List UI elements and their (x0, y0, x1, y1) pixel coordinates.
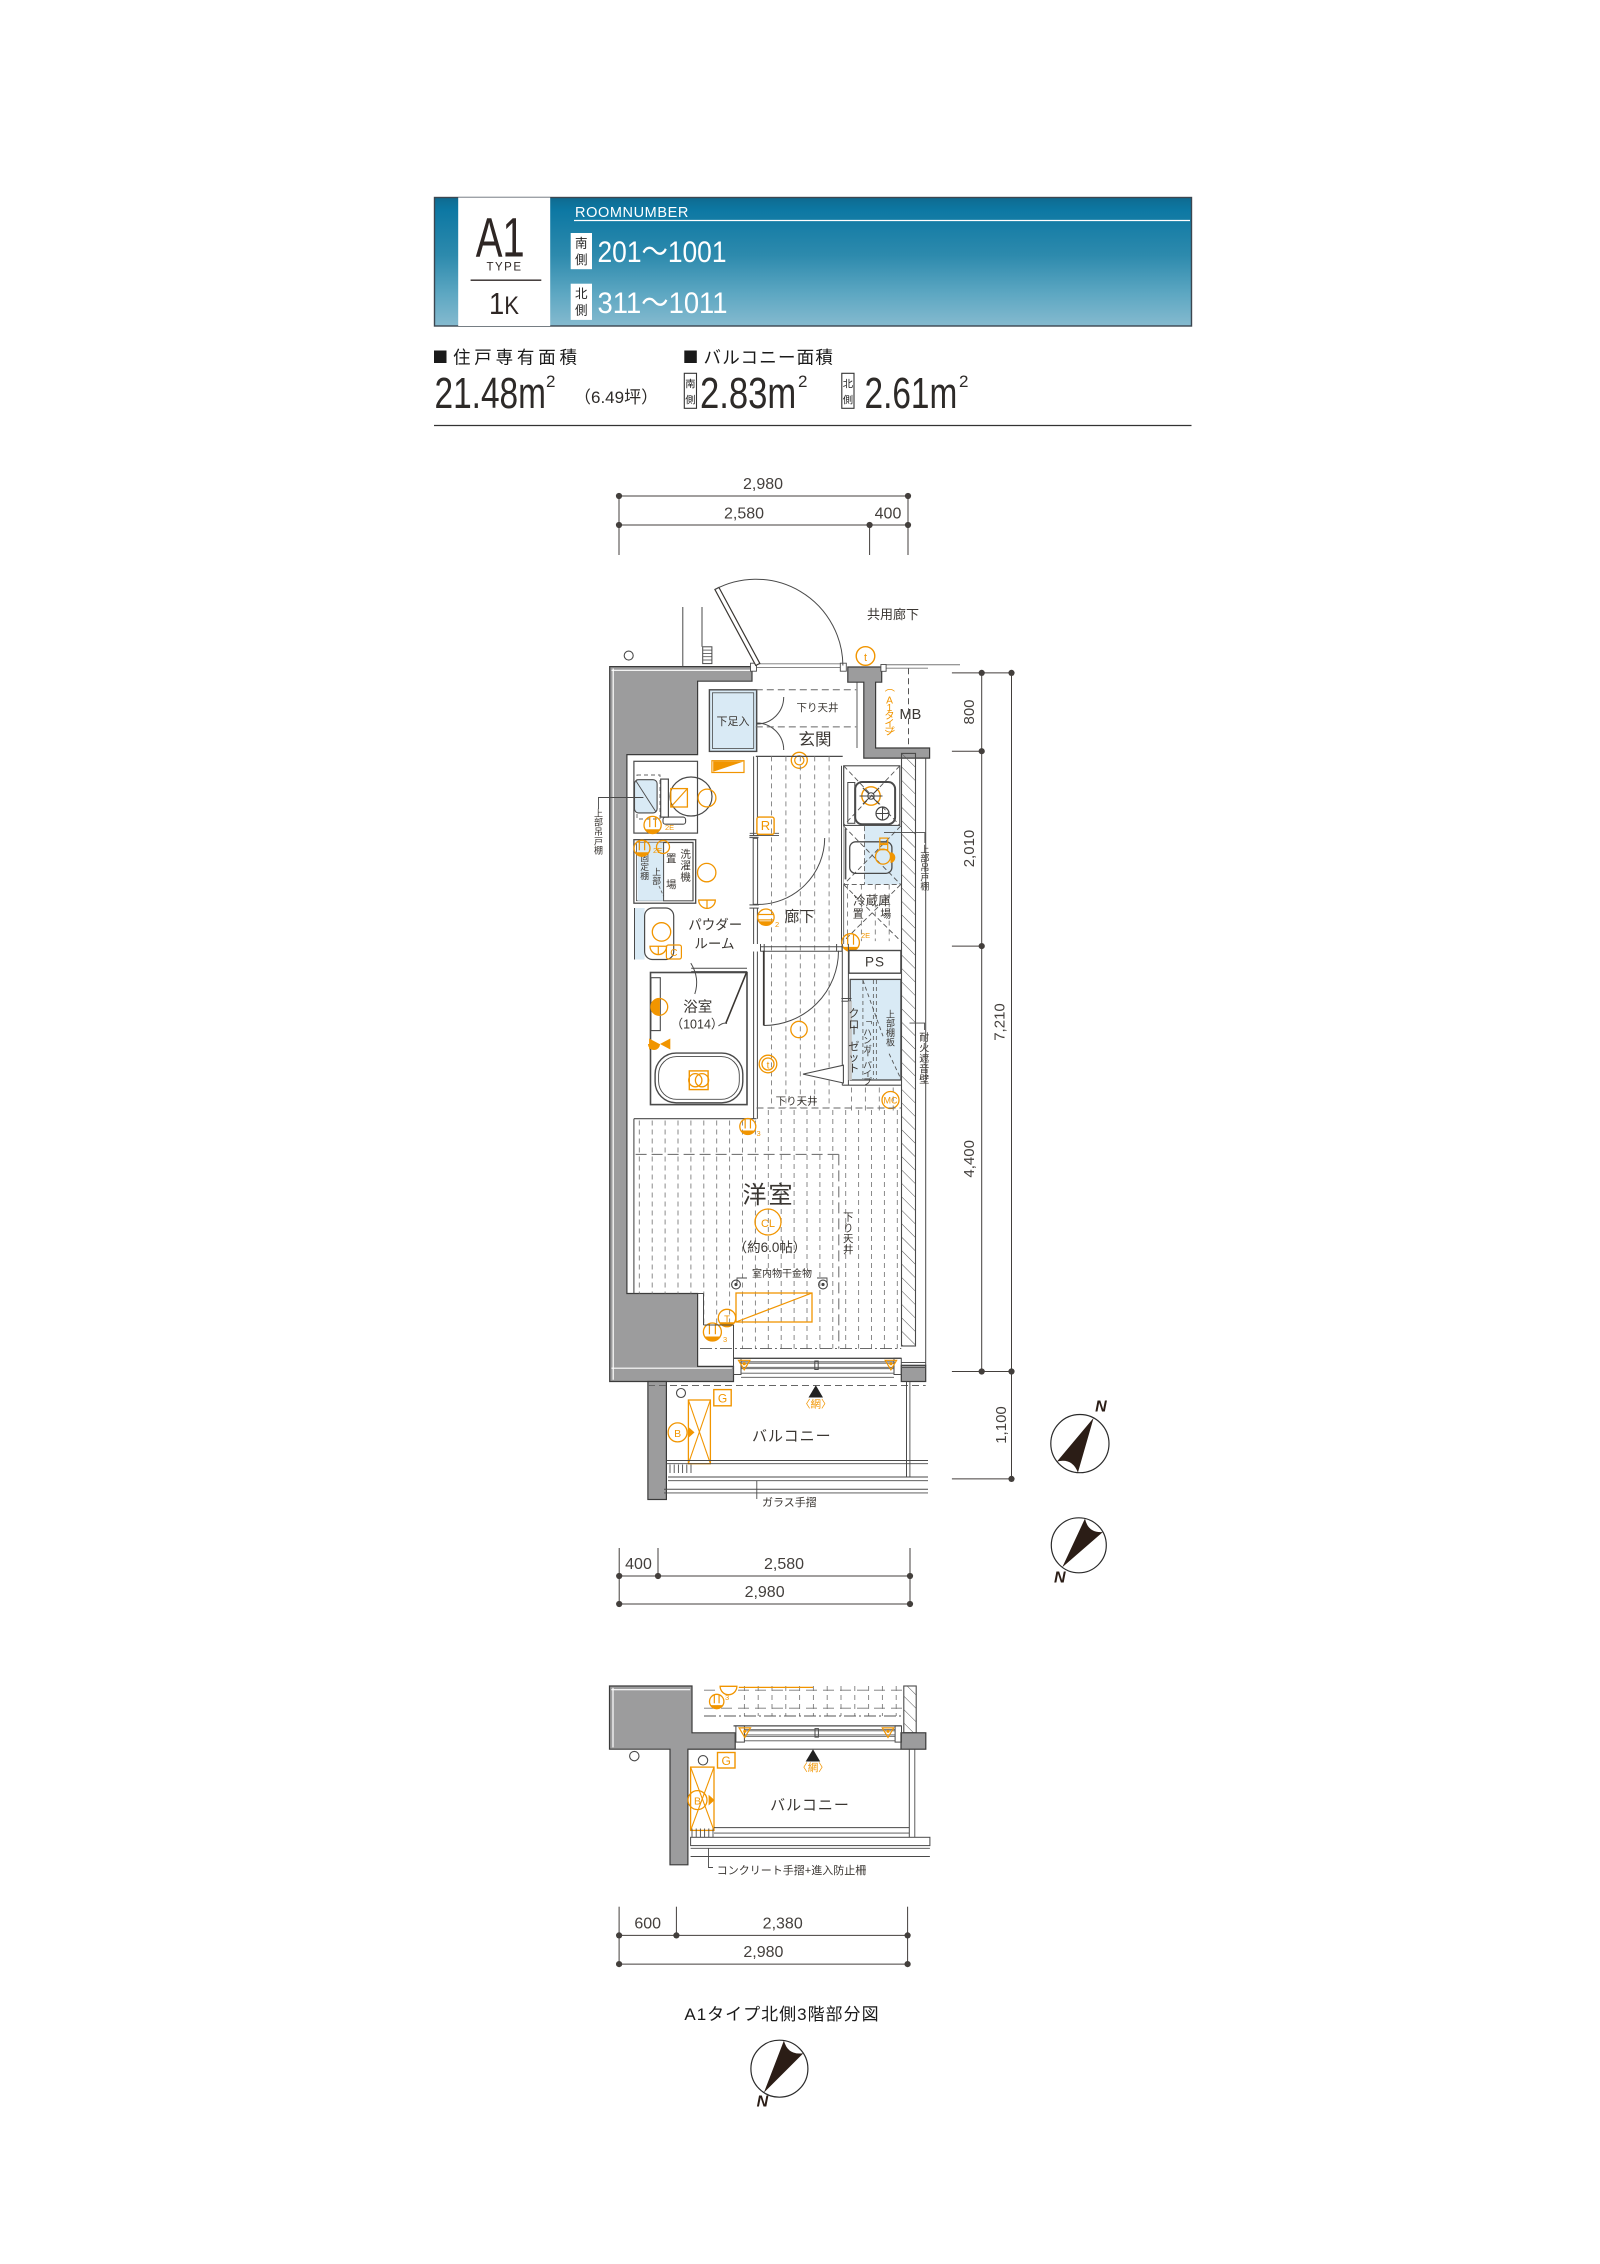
svg-text:下り天井: 下り天井 (797, 701, 839, 714)
svg-text:北: 北 (843, 379, 854, 391)
svg-text:共用廊下: 共用廊下 (867, 607, 919, 622)
svg-text:場: 場 (666, 878, 677, 891)
svg-text:ガラス手摺: ガラス手摺 (762, 1495, 817, 1509)
svg-text:G: G (718, 1392, 727, 1406)
svg-text:〈網〉: 〈網〉 (800, 1398, 832, 1411)
svg-text:（: （ (883, 682, 895, 692)
svg-text:600: 600 (634, 1915, 661, 1932)
svg-text:濯: 濯 (680, 860, 691, 872)
svg-text:2,980: 2,980 (743, 1944, 783, 1961)
svg-text:遮: 遮 (919, 1052, 929, 1065)
svg-text:）: ） (883, 729, 895, 739)
svg-text:t: t (767, 1060, 770, 1071)
svg-text:3: 3 (723, 1335, 727, 1344)
svg-text:洗: 洗 (680, 849, 691, 861)
svg-text:t: t (864, 652, 867, 664)
svg-text:311～1011: 311～1011 (598, 287, 728, 320)
svg-text:2: 2 (546, 372, 555, 391)
svg-text:パウダー: パウダー (688, 918, 742, 933)
svg-text:ルーム: ルーム (694, 937, 734, 952)
svg-text:玄関: 玄関 (799, 730, 832, 749)
svg-text:ト: ト (848, 1063, 859, 1075)
svg-text:下り天井: 下り天井 (776, 1095, 818, 1108)
svg-text:MB: MB (900, 707, 922, 723)
svg-text:1K: 1K (489, 286, 519, 321)
svg-text:ー: ー (847, 1025, 859, 1036)
svg-text:コンクリート手摺+進入防止柵: コンクリート手摺+進入防止柵 (717, 1863, 866, 1877)
svg-text:400: 400 (625, 1556, 652, 1573)
svg-text:2,980: 2,980 (745, 1584, 785, 1601)
svg-text:廊下: 廊下 (784, 909, 814, 926)
svg-text:南: 南 (575, 236, 588, 251)
svg-text:G: G (722, 1754, 731, 1768)
svg-text:室内物干金物: 室内物干金物 (752, 1267, 812, 1280)
svg-text:7,210: 7,210 (992, 1003, 1009, 1041)
svg-text:（6.49坪）: （6.49坪） (574, 388, 658, 407)
svg-text:TYPE: TYPE (486, 262, 522, 274)
svg-text:CL: CL (761, 1218, 775, 1230)
svg-text:2E: 2E (665, 823, 674, 832)
svg-text:MC: MC (884, 1096, 898, 1106)
svg-text:2,580: 2,580 (764, 1556, 804, 1573)
svg-text:2: 2 (775, 920, 779, 929)
svg-text:ROOMNUMBER: ROOMNUMBER (575, 205, 689, 221)
svg-text:機: 機 (680, 871, 691, 884)
svg-text:耐: 耐 (919, 1031, 929, 1044)
svg-text:2,980: 2,980 (743, 476, 783, 493)
svg-text:2: 2 (798, 372, 807, 391)
svg-text:「: 「 (862, 1016, 872, 1025)
svg-text:棚: 棚 (640, 870, 649, 881)
svg-text:N: N (1054, 1569, 1066, 1586)
svg-text:ー: ー (862, 1048, 872, 1057)
svg-text:2: 2 (959, 372, 968, 391)
svg-text:壁: 壁 (919, 1073, 929, 1086)
svg-text:棚: 棚 (920, 881, 929, 892)
svg-text:3: 3 (757, 1129, 761, 1138)
svg-text:800: 800 (961, 699, 978, 724)
svg-text:2,380: 2,380 (763, 1915, 803, 1932)
svg-text:N: N (1095, 1399, 1107, 1416)
svg-text:B: B (674, 1428, 681, 1440)
svg-text:北: 北 (575, 287, 588, 301)
svg-text:音: 音 (919, 1062, 929, 1075)
svg-text:バルコニー面積: バルコニー面積 (704, 347, 835, 367)
svg-text:2E: 2E (861, 931, 870, 940)
svg-text:N: N (757, 2094, 769, 2111)
svg-text:部: 部 (652, 875, 661, 886)
svg-text:住戸専有面積: 住戸専有面積 (453, 347, 581, 367)
svg-text:井: 井 (843, 1243, 854, 1256)
svg-text:（約6.0帖）: （約6.0帖） (734, 1240, 807, 1255)
svg-text:冷蔵庫: 冷蔵庫 (853, 894, 891, 908)
svg-text:側: 側 (575, 304, 588, 318)
svg-text:21.48m: 21.48m (435, 369, 547, 418)
svg-text:B: B (694, 1796, 701, 1808)
svg-text:浴室: 浴室 (683, 999, 712, 1016)
svg-text:置: 置 (666, 853, 677, 865)
svg-text:2.83m: 2.83m (700, 369, 796, 418)
svg-text:A1: A1 (476, 206, 525, 269)
svg-text:〈網〉: 〈網〉 (797, 1761, 829, 1774)
svg-text:2,580: 2,580 (724, 506, 764, 523)
svg-text:A1タイプ北側3階部分図: A1タイプ北側3階部分図 (684, 2005, 879, 2024)
svg-text:C: C (670, 948, 677, 959)
svg-text:棚: 棚 (594, 845, 603, 856)
svg-text:側: 側 (843, 394, 853, 407)
svg-text:側: 側 (575, 253, 588, 267)
svg-text:2.61m: 2.61m (865, 369, 958, 418)
svg-text:バルコニー: バルコニー (770, 1797, 850, 1814)
svg-text:4,400: 4,400 (961, 1140, 978, 1178)
svg-text:1,100: 1,100 (993, 1406, 1010, 1444)
svg-text:板: 板 (886, 1036, 895, 1047)
svg-text:置: 置 (853, 908, 864, 921)
svg-text:（1014）: （1014） (671, 1018, 724, 1032)
svg-text:南: 南 (685, 378, 695, 391)
svg-text:洋室: 洋室 (743, 1182, 795, 1209)
svg-text:R: R (761, 818, 770, 833)
svg-text:PS: PS (865, 955, 885, 970)
svg-text:火: 火 (919, 1043, 929, 1055)
svg-text:400: 400 (875, 506, 902, 523)
svg-text:201～1001: 201～1001 (598, 236, 727, 269)
svg-text:バルコニー: バルコニー (752, 1428, 832, 1445)
svg-text:下足入: 下足入 (717, 716, 750, 728)
svg-text:2,010: 2,010 (961, 830, 978, 868)
svg-text:側: 側 (685, 394, 695, 407)
